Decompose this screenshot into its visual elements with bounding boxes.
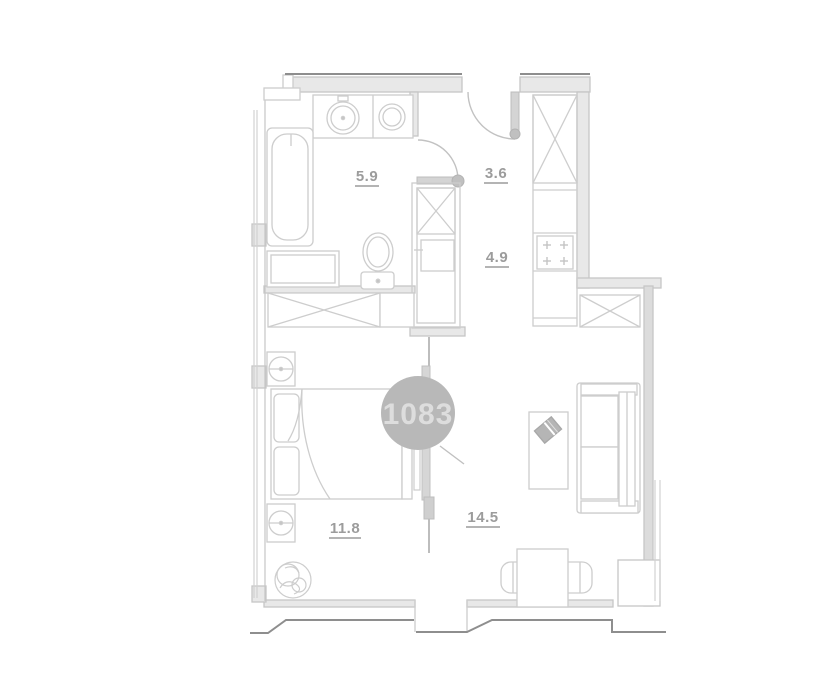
dining-table-icon: [517, 549, 568, 607]
tall-cabinet-icon: [533, 95, 577, 190]
plant-icon: [275, 562, 311, 598]
wall-bottom-right-pier: [618, 560, 660, 606]
sofa-icon: [577, 383, 640, 513]
wardrobe-icon-bathwall: [268, 293, 414, 327]
bathroom-door: [417, 140, 464, 187]
utility-column: [412, 183, 460, 328]
toilet-icon: [361, 233, 394, 289]
coffee-table-icon: [529, 412, 568, 489]
room-label-kitchen: 4.9: [485, 249, 509, 267]
bathtub-icon: [267, 128, 313, 246]
kitchen-units: [533, 95, 577, 326]
wall-top-left: [285, 77, 462, 92]
fridge-icon: [414, 240, 454, 271]
room-label-bathroom: 5.9: [355, 168, 379, 186]
living-area-text: 14.5: [467, 509, 498, 526]
room-label-bedroom: 11.8: [329, 520, 361, 538]
wall-right-exterior: [644, 286, 653, 606]
bathroom-door-arc: [418, 140, 458, 180]
floor-plan-svg: 5.9 3.6 4.9 11.8 14.5 1083: [0, 0, 826, 700]
hallway-area-text: 3.6: [485, 165, 507, 182]
wall-kitchen-right: [577, 92, 589, 288]
washing-machine-icon: [379, 104, 405, 130]
entry-door-arc: [468, 92, 515, 139]
stove-icon: [537, 236, 573, 269]
shaft-icon: [417, 188, 455, 234]
bathroom-area-text: 5.9: [356, 168, 378, 185]
radiator-icon-top: [267, 352, 295, 386]
wall-top-right: [520, 77, 590, 92]
bathroom-cabinet-icon: [267, 251, 339, 287]
entry-door-handle: [510, 129, 520, 139]
wardrobe-icon-kitchen: [580, 295, 640, 327]
kitchen-area-text: 4.9: [486, 249, 508, 266]
room-label-living: 14.5: [466, 509, 500, 527]
closets: [268, 293, 640, 327]
window-left: [254, 92, 265, 601]
bedroom-area-text: 11.8: [330, 520, 360, 537]
bathroom-door-handle: [452, 175, 464, 187]
entry-door: [468, 92, 520, 139]
unit-number-badge[interactable]: 1083: [381, 376, 455, 450]
bathroom-fixtures: [267, 95, 413, 289]
room-label-hallway: 3.6: [484, 165, 508, 183]
sliding-door-handle: [424, 497, 434, 519]
wall-bedroom-bottom: [264, 600, 415, 607]
floor-plan-page: 5.9 3.6 4.9 11.8 14.5 1083: [0, 0, 826, 700]
unit-number-text: 1083: [383, 398, 454, 431]
radiator-icon-bottom: [267, 504, 295, 542]
